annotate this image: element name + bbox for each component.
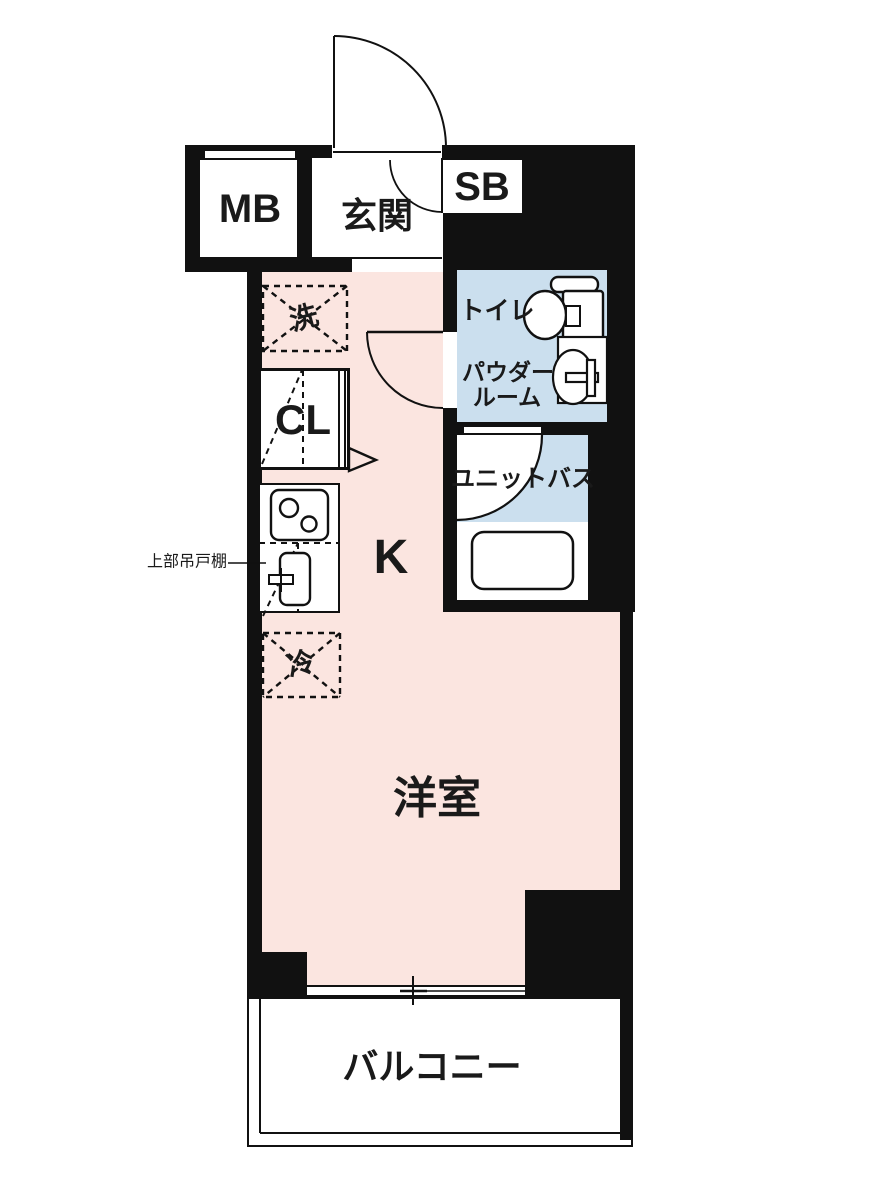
floor-plan: MB 玄関 SB 洗 CL トイレ パウダー ルーム ユニットバス K 冷 洋室… xyxy=(0,0,880,1200)
label-upper-cabinet: 上部吊戸棚 xyxy=(147,555,227,572)
label-powder-line1: パウダー xyxy=(462,360,554,384)
stove-icon xyxy=(271,490,328,540)
sink-icon xyxy=(553,337,607,404)
label-unit-bath: ユニットバス xyxy=(451,466,595,491)
bathtub-icon xyxy=(472,532,573,589)
label-genkan: 玄関 xyxy=(341,197,413,235)
kitchen-sink-icon xyxy=(259,543,339,616)
label-balcony: バルコニー xyxy=(342,1048,521,1086)
label-kitchen: K xyxy=(374,533,409,583)
label-mb: MB xyxy=(219,188,281,230)
window-slider xyxy=(400,976,525,1005)
label-sb: SB xyxy=(454,166,510,208)
powder-room-door xyxy=(367,332,443,408)
label-toilet: トイレ xyxy=(459,298,534,324)
label-closet: CL xyxy=(275,398,331,442)
label-powder-line2: ルーム xyxy=(473,385,541,409)
toilet-icon xyxy=(524,277,603,340)
entrance-door-arc xyxy=(333,36,446,152)
plan-linework xyxy=(0,0,880,1200)
label-western-room: 洋室 xyxy=(393,776,481,822)
